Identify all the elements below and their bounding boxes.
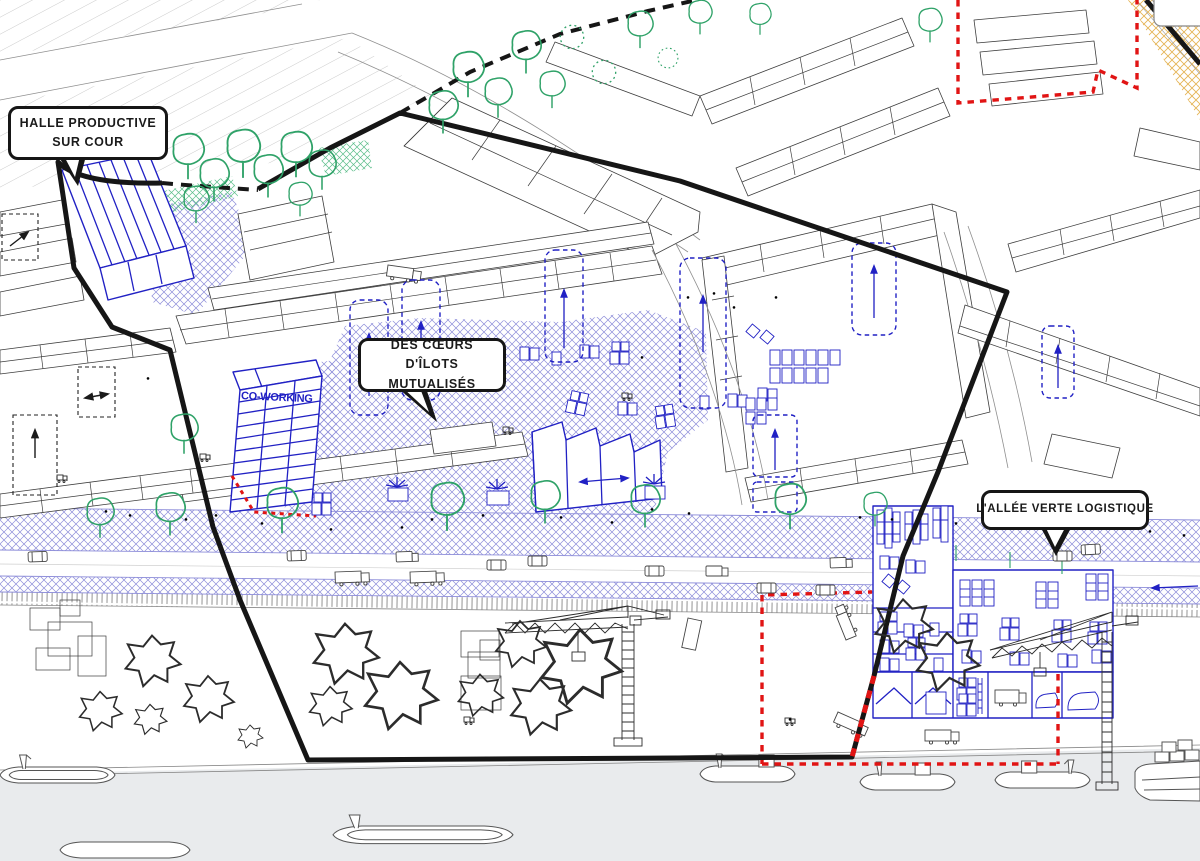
masterplan-drawing: HALLE PRODUCTIVE SUR COUR DES CŒURS D'ÎL… [0,0,1200,861]
quay-shed-cluster-west [30,600,106,676]
quay-shed-cluster-centre [461,631,501,710]
yellow-roadworks-strip [1128,0,1200,120]
garden-plot-grid [746,324,840,424]
coworking-building [230,360,322,516]
annotation-allee-verte: L'ALLÉE VERTE LOGISTIQUE [981,490,1149,530]
tower-crane-centre [505,606,670,746]
plan-scene [0,0,1200,861]
container-ship [1135,740,1200,801]
annotation-halle-productive: HALLE PRODUCTIVE SUR COUR [8,106,168,160]
annotation-coeurs-ilots: DES CŒURS D'ÎLOTS MUTUALISÉS [358,338,506,392]
corner-label-box [1154,0,1200,26]
